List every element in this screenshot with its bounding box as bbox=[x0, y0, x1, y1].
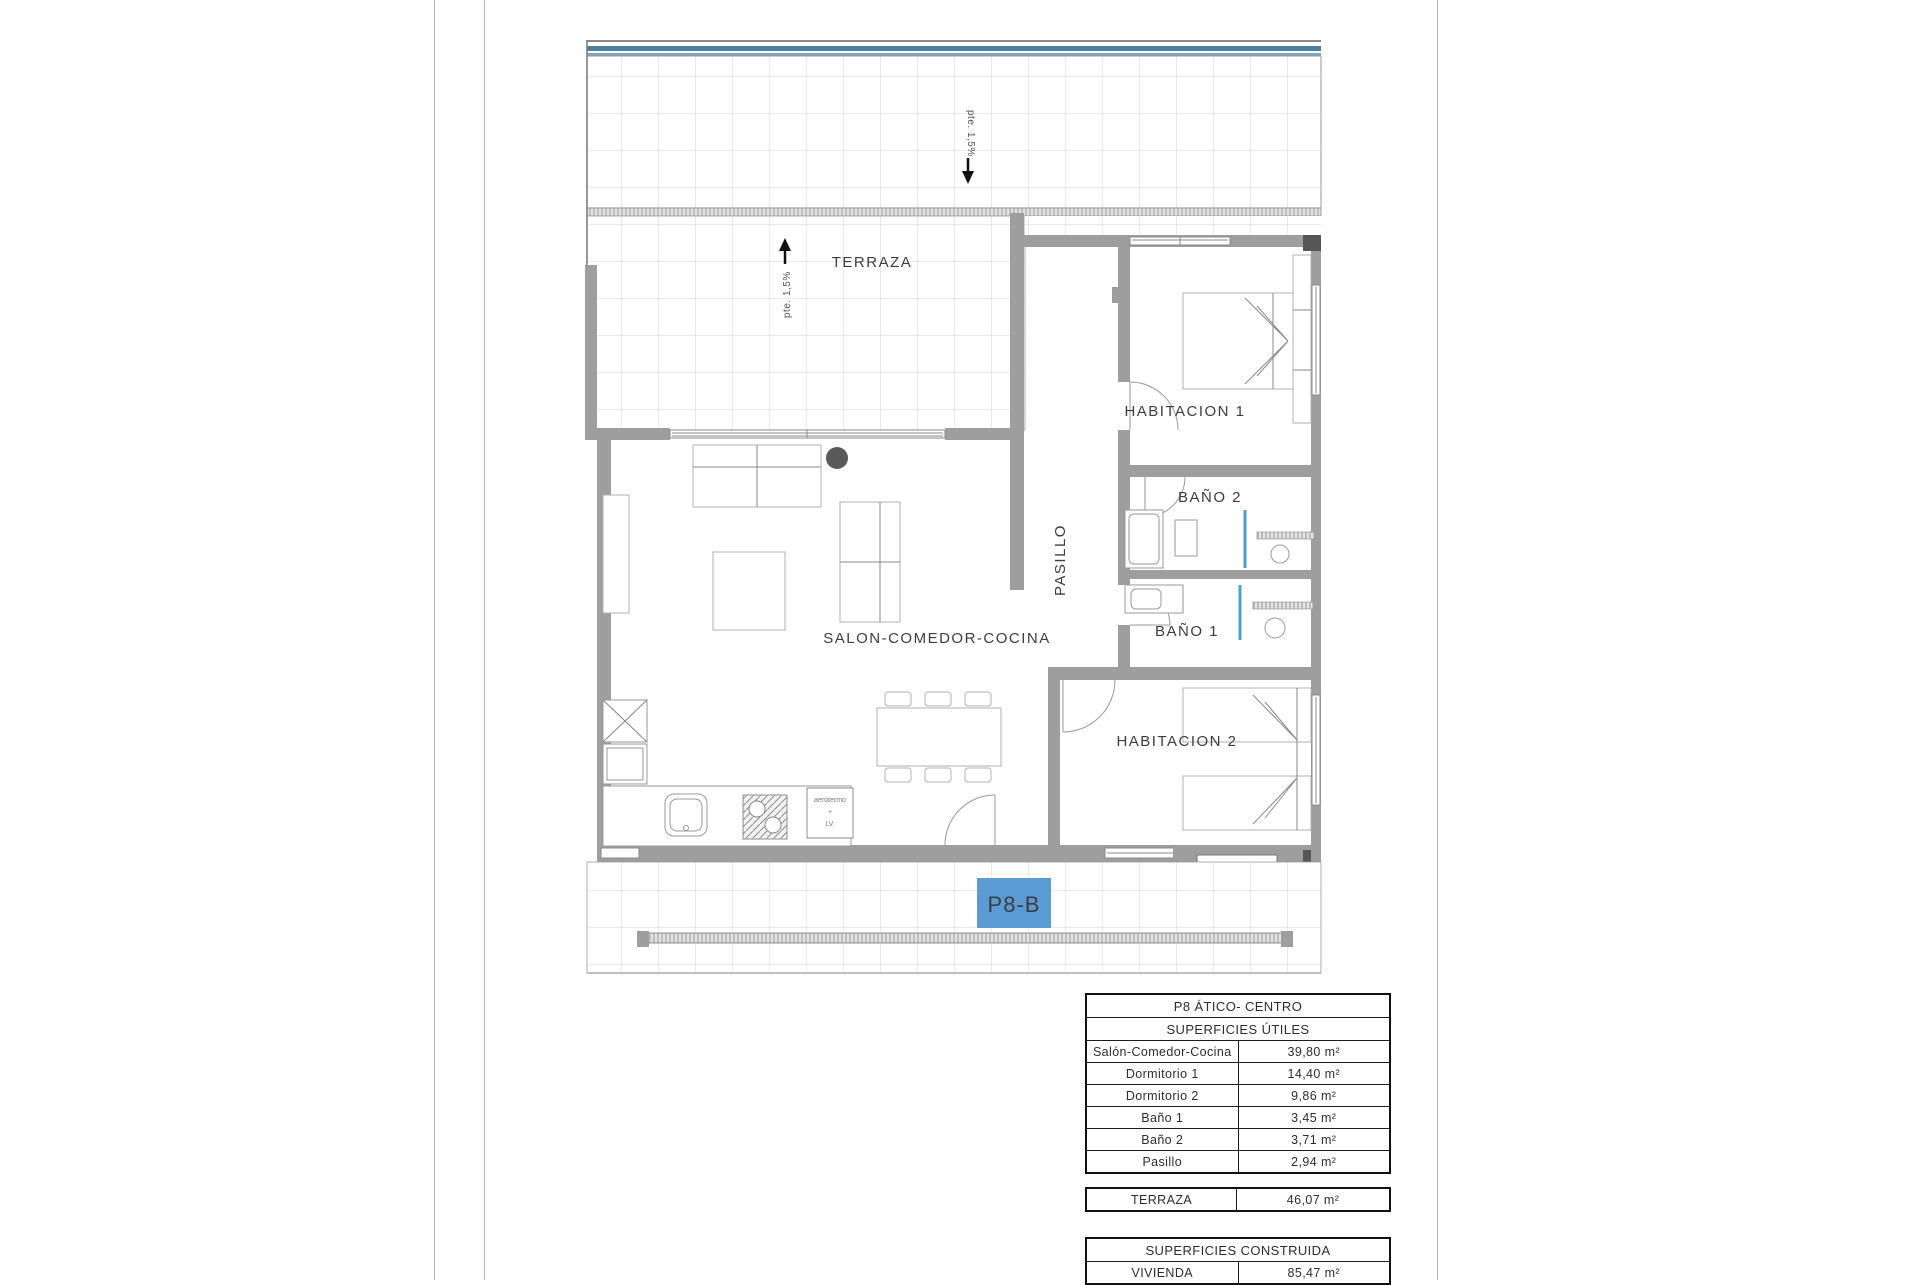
aerotermo-unit: aerotermo + LV. bbox=[807, 788, 853, 838]
room-label-cell: Pasillo bbox=[1086, 1151, 1238, 1174]
terraza-room-label: TERRAZA bbox=[832, 254, 913, 271]
room-label-cell: Baño 1 bbox=[1086, 1107, 1238, 1129]
slope-mid-label: pte. 1,5% bbox=[782, 271, 793, 318]
table-row: Dormitorio 1 14,40 m² bbox=[1086, 1063, 1390, 1085]
room-label-cell: VIVIENDA bbox=[1086, 1262, 1238, 1285]
sideboard bbox=[603, 495, 629, 613]
bano2-room-label: BAÑO 2 bbox=[1178, 489, 1242, 506]
column-dot bbox=[826, 447, 848, 469]
area-value-cell: 46,07 m² bbox=[1237, 1188, 1390, 1211]
terrace-upper-tiles bbox=[587, 56, 1321, 208]
table-row: Pasillo 2,94 m² bbox=[1086, 1151, 1390, 1174]
habitacion2-room-label: HABITACION 2 bbox=[1116, 733, 1237, 750]
terrace-right-strip bbox=[1025, 216, 1321, 235]
sink bbox=[665, 794, 707, 836]
habitacion1-room-label: HABITACION 1 bbox=[1124, 403, 1245, 420]
superficies-utiles-table: P8 ÁTICO- CENTRO SUPERFICIES ÚTILES Saló… bbox=[1085, 993, 1391, 1174]
area-value-cell: 85,47 m² bbox=[1238, 1262, 1390, 1285]
sheet-guide-line-right bbox=[1437, 0, 1438, 1280]
floor-plan: pte. 1,5% pte. 1,5% TERRAZA bbox=[585, 40, 1325, 980]
salon-room-label: SALON-COMEDOR-COCINA bbox=[823, 630, 1051, 647]
sheet-guide-line-left-1 bbox=[434, 0, 435, 1280]
table-row: Baño 1 3,45 m² bbox=[1086, 1107, 1390, 1129]
area-value-cell: 39,80 m² bbox=[1238, 1041, 1390, 1063]
area-value-cell: 14,40 m² bbox=[1238, 1063, 1390, 1085]
room-label-cell: Dormitorio 1 bbox=[1086, 1063, 1238, 1085]
terrace-lower-tiles bbox=[587, 216, 1025, 430]
table-row: Baño 2 3,71 m² bbox=[1086, 1129, 1390, 1151]
unit-label: P8-B bbox=[988, 892, 1041, 917]
appliance-label-1: aerotermo bbox=[814, 797, 846, 804]
appliance-label-2: + bbox=[828, 809, 832, 816]
bano1-room-label: BAÑO 1 bbox=[1155, 623, 1219, 640]
surface-tables: P8 ÁTICO- CENTRO SUPERFICIES ÚTILES Saló… bbox=[1085, 993, 1391, 1285]
appliance-label-3: LV. bbox=[825, 821, 834, 828]
pasillo-room-label: PASILLO bbox=[1052, 524, 1069, 596]
room-label-cell: Dormitorio 2 bbox=[1086, 1085, 1238, 1107]
table-title: P8 ÁTICO- CENTRO bbox=[1086, 994, 1390, 1018]
room-label-cell: Salón-Comedor-Cocina bbox=[1086, 1041, 1238, 1063]
kitchen: aerotermo + LV. bbox=[603, 700, 853, 846]
terraza-table: TERRAZA 46,07 m² bbox=[1085, 1187, 1391, 1212]
area-value-cell: 3,71 m² bbox=[1238, 1129, 1390, 1151]
area-value-cell: 9,86 m² bbox=[1238, 1085, 1390, 1107]
table-row: VIVIENDA 85,47 m² bbox=[1086, 1262, 1390, 1285]
hob bbox=[743, 795, 787, 839]
bedroom2-furniture bbox=[1183, 688, 1311, 830]
table-title: SUPERFICIES CONSTRUIDA bbox=[1086, 1238, 1390, 1262]
room-label-cell: Baño 2 bbox=[1086, 1129, 1238, 1151]
table-row: TERRAZA 46,07 m² bbox=[1086, 1188, 1390, 1211]
room-label-cell: TERRAZA bbox=[1086, 1188, 1237, 1211]
unit-badge: P8-B bbox=[977, 878, 1051, 928]
terrace-roof-edge bbox=[587, 40, 1321, 56]
terrace-railing-strip bbox=[587, 208, 1321, 216]
slope-top-label: pte. 1,5% bbox=[965, 110, 976, 157]
area-value-cell: 3,45 m² bbox=[1238, 1107, 1390, 1129]
rug bbox=[713, 552, 785, 630]
living-room-furniture bbox=[603, 445, 900, 630]
table-row: Salón-Comedor-Cocina 39,80 m² bbox=[1086, 1041, 1390, 1063]
superficies-construida-table: SUPERFICIES CONSTRUIDA VIVIENDA 85,47 m² bbox=[1085, 1237, 1391, 1285]
walkway-tiles bbox=[587, 862, 1321, 973]
table-row: Dormitorio 2 9,86 m² bbox=[1086, 1085, 1390, 1107]
area-value-cell: 2,94 m² bbox=[1238, 1151, 1390, 1174]
sheet-guide-line-left-2 bbox=[484, 0, 485, 1280]
table-subtitle: SUPERFICIES ÚTILES bbox=[1086, 1018, 1390, 1041]
bathroom2-fixtures bbox=[1125, 510, 1315, 568]
bedroom1-furniture bbox=[1183, 255, 1311, 423]
dining-set bbox=[877, 692, 1001, 782]
